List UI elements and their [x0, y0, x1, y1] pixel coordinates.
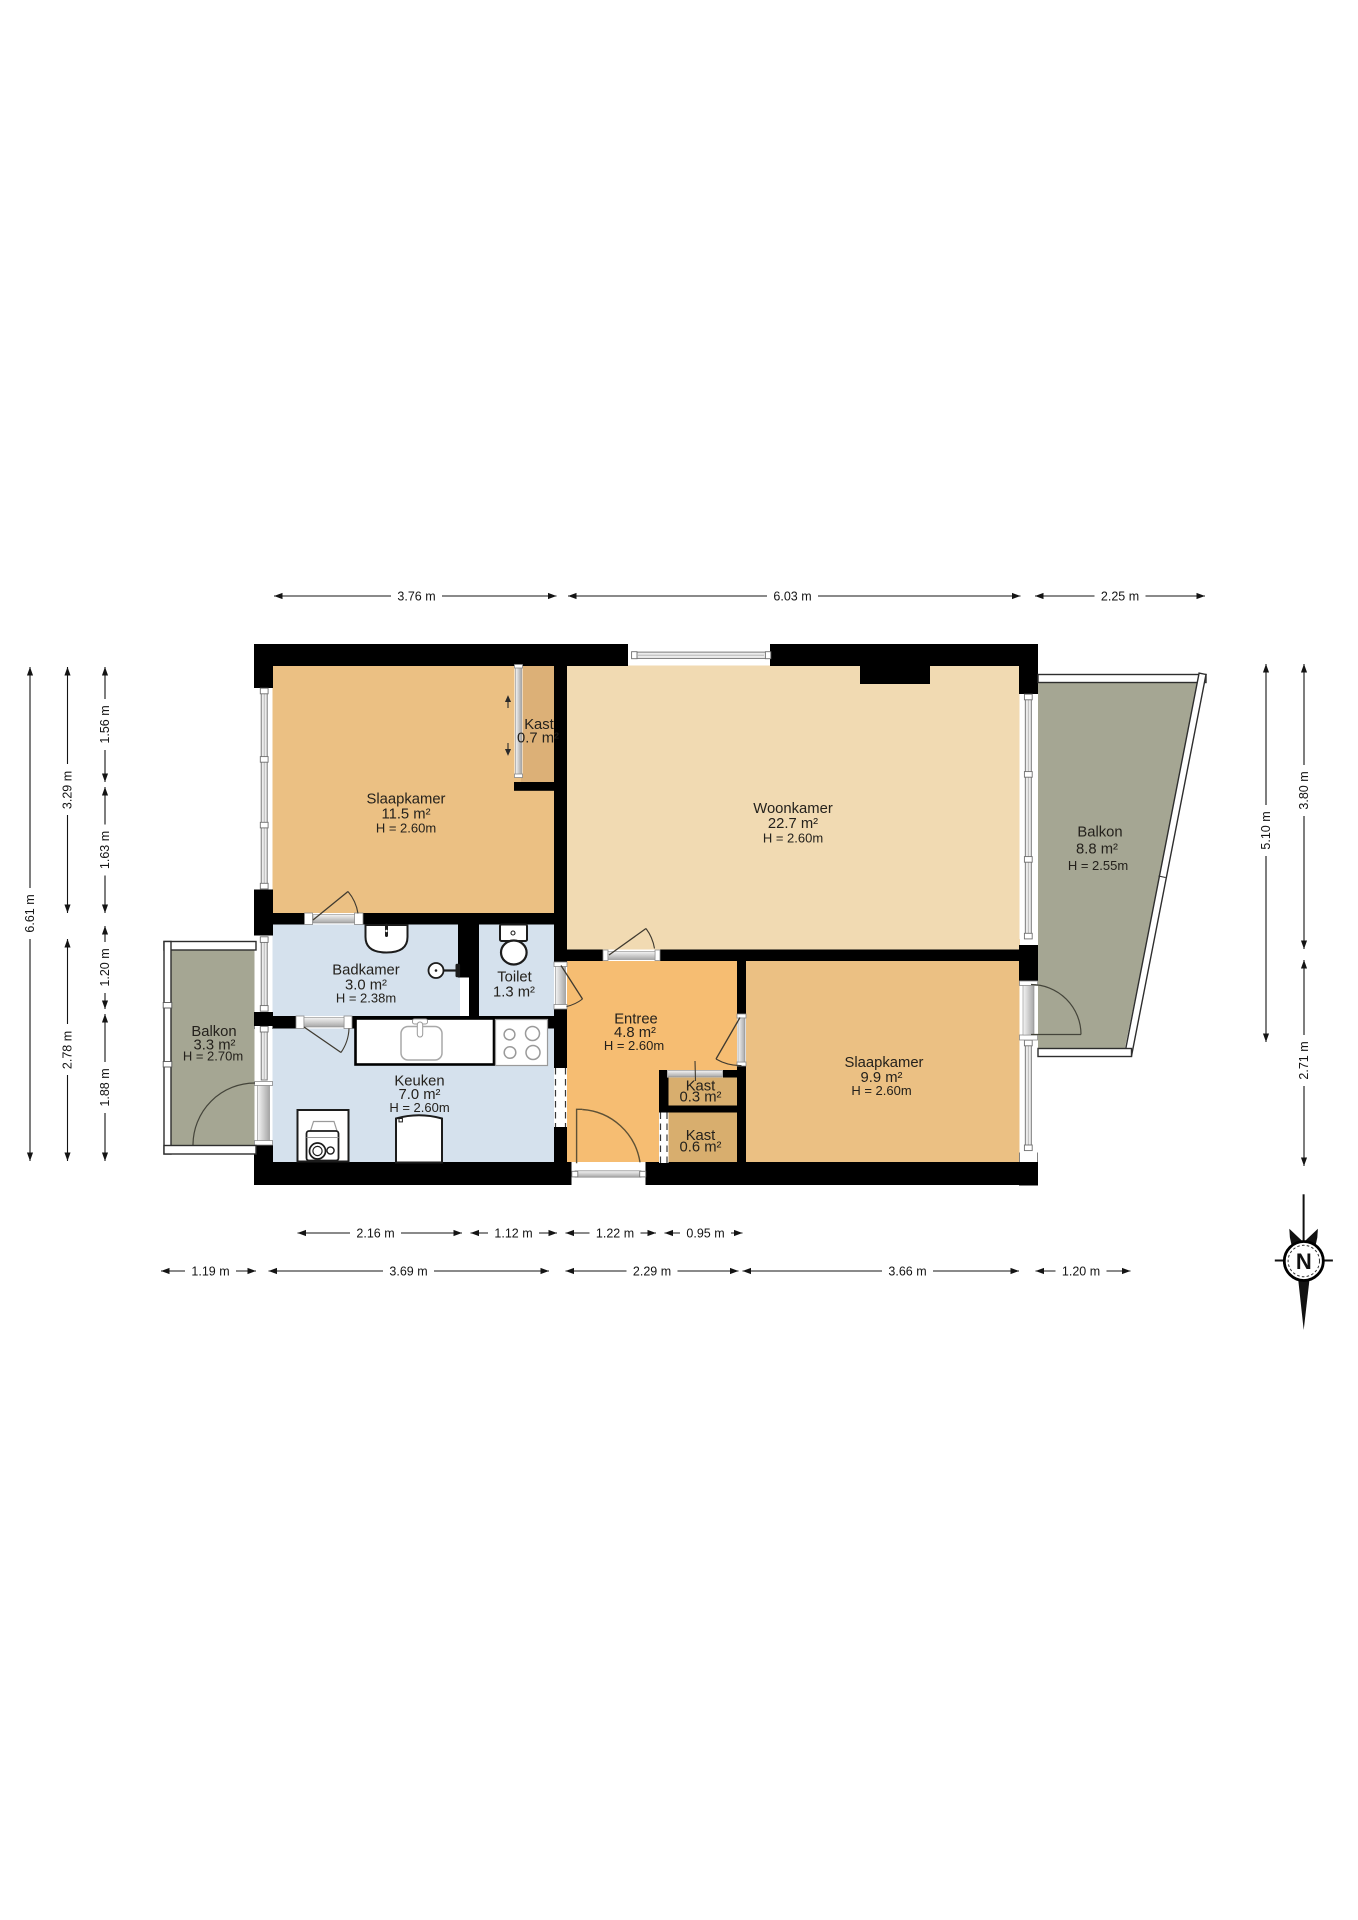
svg-text:1.12 m: 1.12 m	[494, 1227, 532, 1241]
svg-text:3.29 m: 3.29 m	[61, 771, 75, 809]
svg-text:0.3 m²: 0.3 m²	[680, 1090, 722, 1106]
svg-text:2.25 m: 2.25 m	[1101, 590, 1139, 604]
svg-text:Woonkamer: Woonkamer	[753, 801, 833, 817]
svg-text:6.03 m: 6.03 m	[773, 590, 811, 604]
svg-text:0.6 m²: 0.6 m²	[680, 1140, 722, 1156]
svg-text:2.78 m: 2.78 m	[61, 1031, 75, 1069]
svg-text:2.71 m: 2.71 m	[1297, 1041, 1311, 1079]
svg-text:H = 2.60m: H = 2.60m	[763, 831, 823, 846]
svg-text:Toilet: Toilet	[497, 970, 532, 986]
svg-text:8.8 m²: 8.8 m²	[1076, 842, 1118, 858]
svg-text:3.76 m: 3.76 m	[397, 590, 435, 604]
svg-text:0.95 m: 0.95 m	[686, 1227, 724, 1241]
svg-text:Slaapkamer: Slaapkamer	[367, 792, 446, 808]
svg-text:1.56 m: 1.56 m	[98, 705, 112, 743]
svg-text:1.20 m: 1.20 m	[98, 948, 112, 986]
svg-text:3.66 m: 3.66 m	[888, 1265, 926, 1279]
svg-text:1.63 m: 1.63 m	[98, 831, 112, 869]
svg-text:3.69 m: 3.69 m	[389, 1265, 427, 1279]
svg-text:0.7 m²: 0.7 m²	[517, 731, 559, 747]
svg-text:2.29 m: 2.29 m	[633, 1265, 671, 1279]
svg-text:H = 2.60m: H = 2.60m	[604, 1038, 664, 1053]
svg-text:1.22 m: 1.22 m	[596, 1227, 634, 1241]
svg-text:H = 2.60m: H = 2.60m	[851, 1083, 911, 1098]
svg-text:6.61 m: 6.61 m	[23, 894, 37, 932]
svg-text:1.20 m: 1.20 m	[1062, 1265, 1100, 1279]
svg-text:1.3 m²: 1.3 m²	[493, 985, 535, 1001]
svg-text:H = 2.70m: H = 2.70m	[183, 1049, 243, 1064]
svg-text:2.16 m: 2.16 m	[356, 1227, 394, 1241]
svg-text:1.88 m: 1.88 m	[98, 1068, 112, 1106]
svg-text:Badkamer: Badkamer	[332, 963, 400, 979]
svg-text:N: N	[1296, 1249, 1312, 1274]
svg-text:H = 2.38m: H = 2.38m	[336, 991, 396, 1006]
svg-text:Slaapkamer: Slaapkamer	[845, 1055, 924, 1071]
svg-text:5.10 m: 5.10 m	[1259, 811, 1273, 849]
svg-text:3.80 m: 3.80 m	[1297, 771, 1311, 809]
svg-text:Balkon: Balkon	[1077, 825, 1122, 841]
svg-text:H = 2.60m: H = 2.60m	[389, 1100, 449, 1115]
svg-text:1.19 m: 1.19 m	[191, 1265, 229, 1279]
svg-text:H = 2.60m: H = 2.60m	[376, 821, 436, 836]
svg-text:H = 2.55m: H = 2.55m	[1068, 858, 1128, 873]
